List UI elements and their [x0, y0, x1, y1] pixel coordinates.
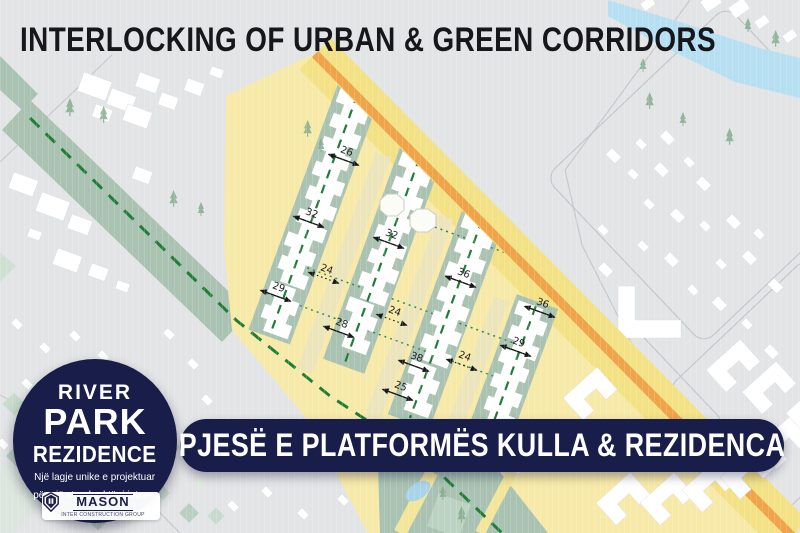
- logo-subtitle: INTER CONSTRUCTION GROUP: [61, 512, 145, 518]
- badge-line-park: PARK: [43, 403, 146, 441]
- badge-line-river: RIVER: [58, 382, 132, 403]
- banner-text: PJESË E PLATFORMËS KULLA & REZIDENCA: [179, 427, 786, 464]
- mason-logo: MASON INTER CONSTRUCTION GROUP: [42, 492, 160, 520]
- badge-tagline-1: Një lagje unike e projektuar: [35, 471, 156, 485]
- logo-name: MASON: [73, 494, 132, 511]
- bottom-banner: PJESË E PLATFORMËS KULLA & REZIDENCA: [180, 419, 784, 472]
- map-poster: 26322924283224382536243629 INTERLOCKING …: [0, 0, 800, 533]
- page-title: INTERLOCKING OF URBAN & GREEN CORRIDORS: [20, 22, 716, 59]
- badge-line-rezidence: REZIDENCE: [33, 441, 157, 467]
